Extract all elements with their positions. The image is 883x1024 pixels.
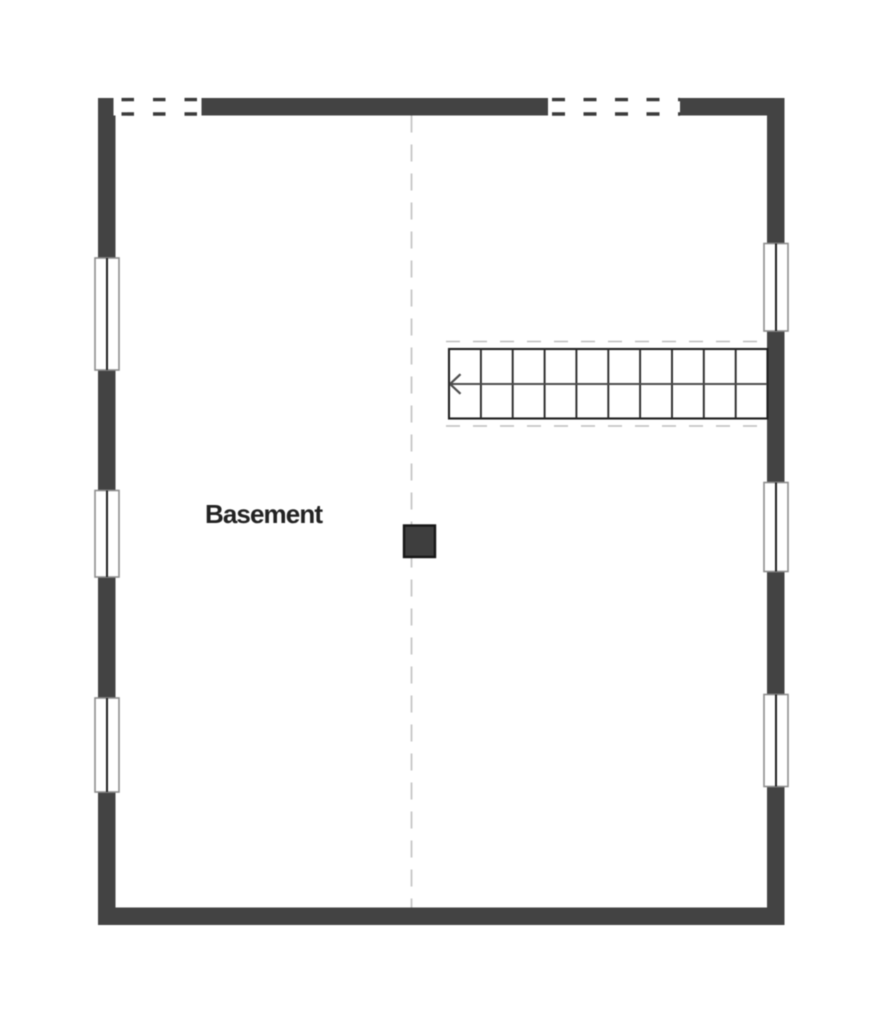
svg-text:Basement: Basement (205, 499, 323, 529)
